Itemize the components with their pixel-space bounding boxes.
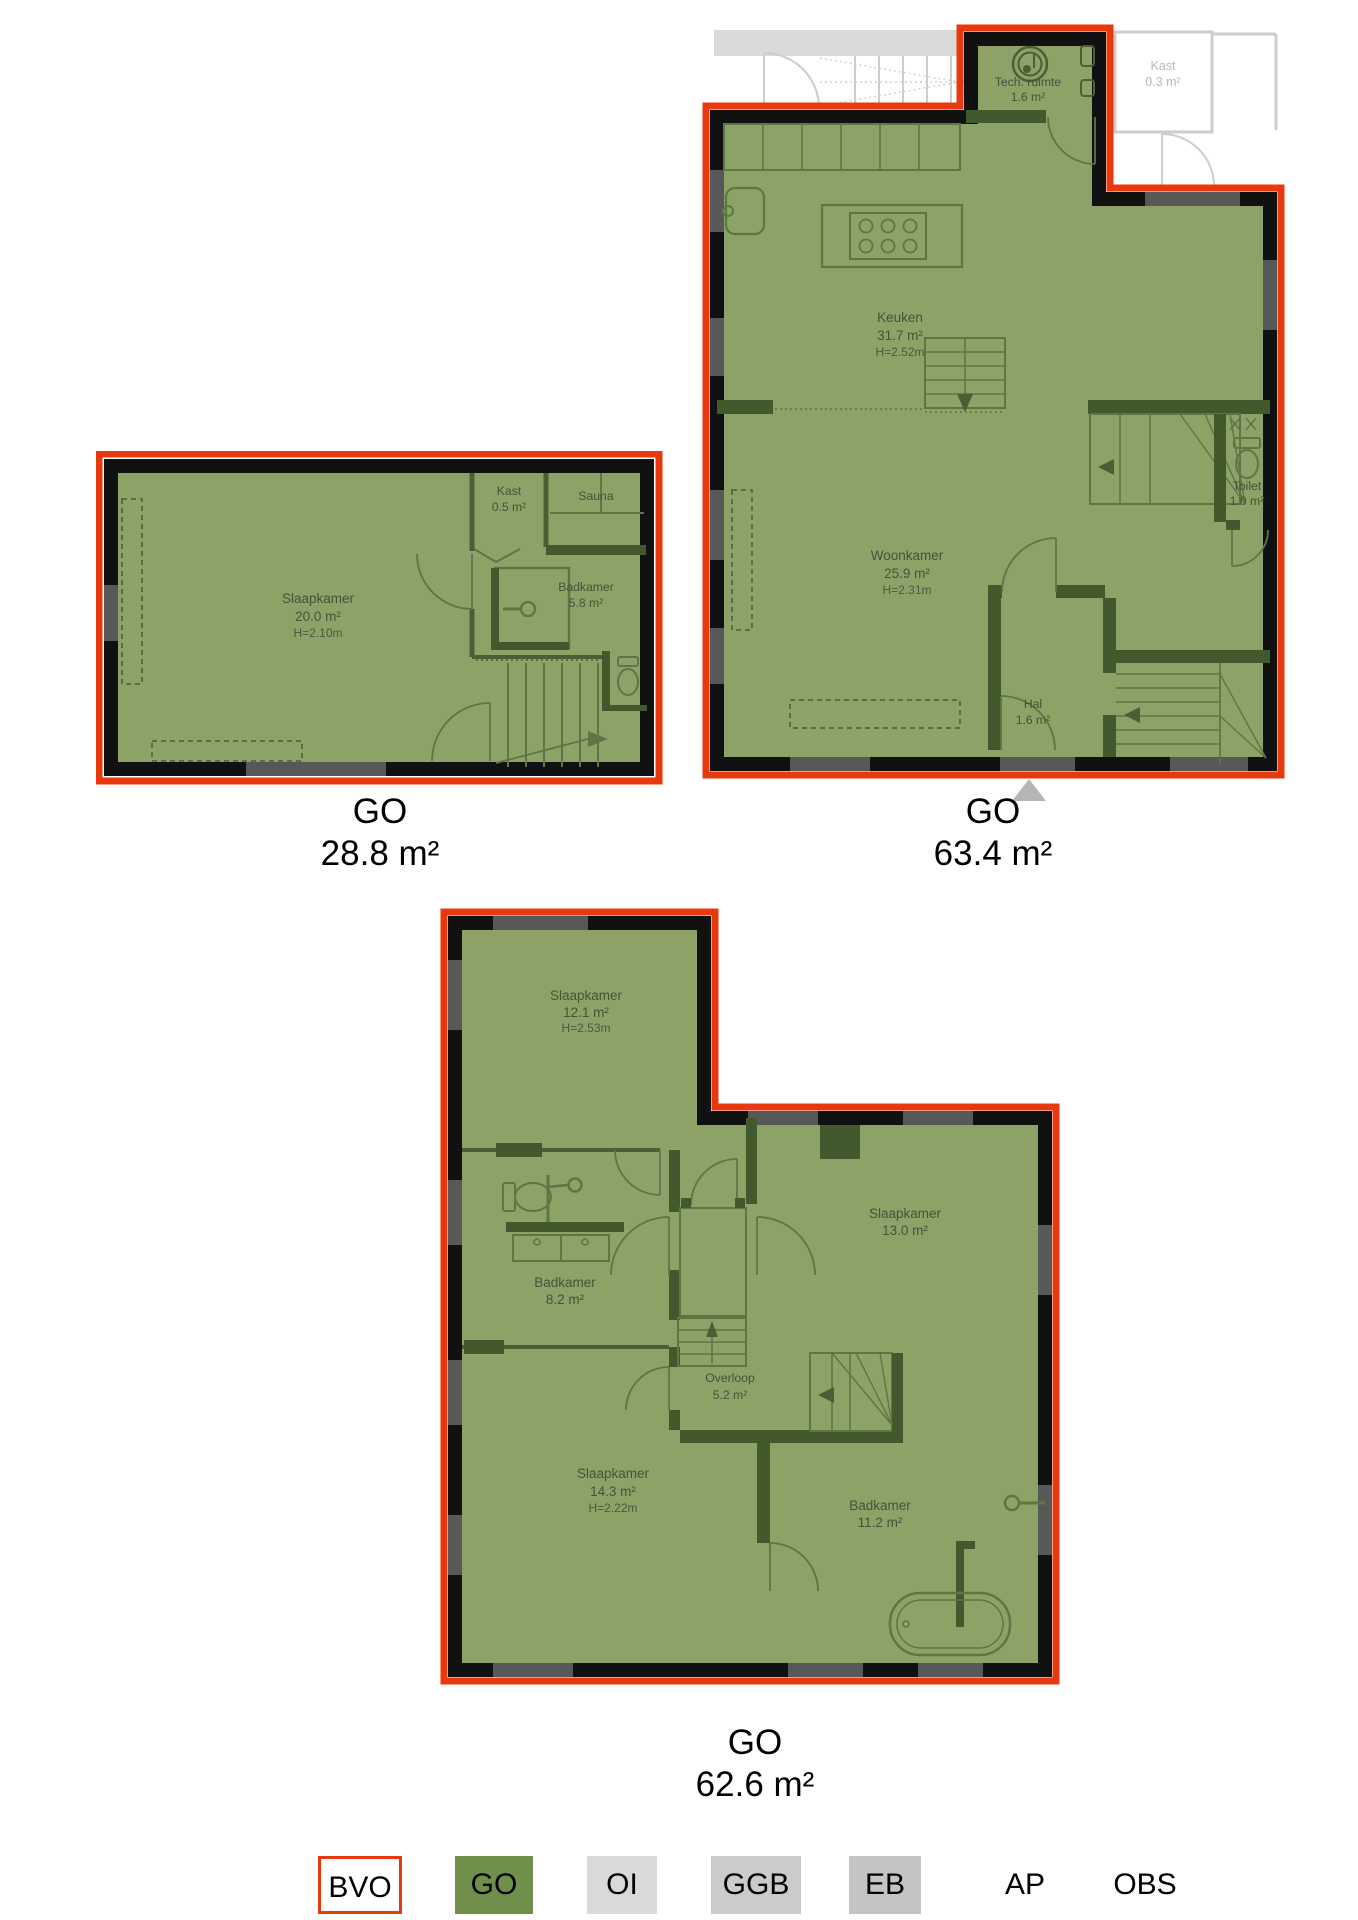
legend-item-eb: EB	[849, 1856, 921, 1914]
caption-label: GO	[240, 791, 520, 833]
room-area-badkamer: 5.8 m²	[569, 596, 604, 610]
room-area-woonkamer: 25.9 m²	[884, 566, 930, 581]
room-label-woonkamer: Woonkamer	[871, 548, 944, 563]
room-area-tech-ruimte: 1.6 m²	[1011, 90, 1046, 104]
room-label-kast: Kast	[497, 484, 522, 498]
caption-floorplan-2: GO 63.4 m²	[853, 791, 1133, 875]
caption-floorplan-3: GO 62.6 m²	[615, 1722, 895, 1806]
room-area-hal: 1.6 m²	[1016, 713, 1051, 727]
floorplan-2: Kast 0.3 m²	[700, 20, 1300, 790]
room-area-slaapkamer: 20.0 m²	[295, 609, 341, 624]
floorplan-sheet: Slaapkamer 20.0 m² H=2.10m Kast 0.5 m² S…	[0, 0, 1358, 1920]
caption-label: GO	[615, 1722, 895, 1764]
room-area-slaapkamer-13: 13.0 m²	[882, 1223, 928, 1238]
room-label-kast-outside: Kast	[1150, 59, 1176, 73]
room-height-woonkamer: H=2.31m	[882, 583, 931, 597]
room-area-badkamer-8: 8.2 m²	[546, 1292, 585, 1307]
room-label-slaapkamer-13: Slaapkamer	[869, 1206, 942, 1221]
room-label-sauna: Sauna	[578, 489, 613, 503]
room-label-badkamer-11: Badkamer	[849, 1498, 911, 1513]
room-area-slaapkamer-12: 12.1 m²	[563, 1005, 609, 1020]
caption-floorplan-1: GO 28.8 m²	[240, 791, 520, 875]
floorplan-1: Slaapkamer 20.0 m² H=2.10m Kast 0.5 m² S…	[96, 451, 666, 791]
room-height-slaapkamer-14: H=2.22m	[588, 1501, 637, 1515]
room-label-slaapkamer: Slaapkamer	[282, 591, 355, 606]
caption-area: 62.6 m²	[615, 1764, 895, 1806]
floorplan-3-structure	[444, 912, 1056, 1681]
caption-area: 63.4 m²	[853, 833, 1133, 875]
room-area-overloop: 5.2 m²	[713, 1388, 748, 1402]
room-label-slaapkamer-14: Slaapkamer	[577, 1466, 650, 1481]
room-label-overloop: Overloop	[705, 1371, 755, 1385]
caption-area: 28.8 m²	[240, 833, 520, 875]
legend-item-obs: OBS	[1090, 1856, 1200, 1914]
room-label-keuken: Keuken	[877, 310, 923, 325]
caption-label: GO	[853, 791, 1133, 833]
room-area-slaapkamer-14: 14.3 m²	[590, 1484, 636, 1499]
wall-stub	[820, 1125, 860, 1159]
room-height-slaapkamer-12: H=2.53m	[561, 1021, 610, 1035]
room-label-toilet: Toilet	[1233, 479, 1262, 493]
room-height-keuken: H=2.52m	[875, 345, 924, 359]
room-height-slaapkamer: H=2.10m	[293, 626, 342, 640]
room-area-keuken: 31.7 m²	[877, 328, 923, 343]
legend-item-go: GO	[455, 1856, 533, 1914]
floorplan-1-structure	[99, 454, 659, 781]
legend-item-bvo: BVO	[318, 1856, 402, 1914]
floorplan-3: Slaapkamer 12.1 m² H=2.53m Badkamer 8.2 …	[438, 905, 1068, 1695]
room-label-badkamer: Badkamer	[558, 580, 614, 594]
room-label-hal: Hal	[1024, 697, 1042, 711]
legend-item-ggb: GGB	[711, 1856, 801, 1914]
outer-walls	[111, 466, 647, 769]
room-label-slaapkamer-12: Slaapkamer	[550, 988, 623, 1003]
legend-item-oi: OI	[587, 1856, 657, 1914]
room-area-toilet: 1.0 m²	[1230, 494, 1265, 508]
room-area-kast-outside: 0.3 m²	[1145, 75, 1180, 89]
room-label-tech-ruimte: Tech. ruimte	[995, 75, 1062, 89]
legend-item-ap: AP	[975, 1856, 1075, 1914]
room-area-badkamer-11: 11.2 m²	[858, 1515, 903, 1530]
room-area-kast: 0.5 m²	[492, 500, 527, 514]
room-label-badkamer-8: Badkamer	[534, 1275, 596, 1290]
